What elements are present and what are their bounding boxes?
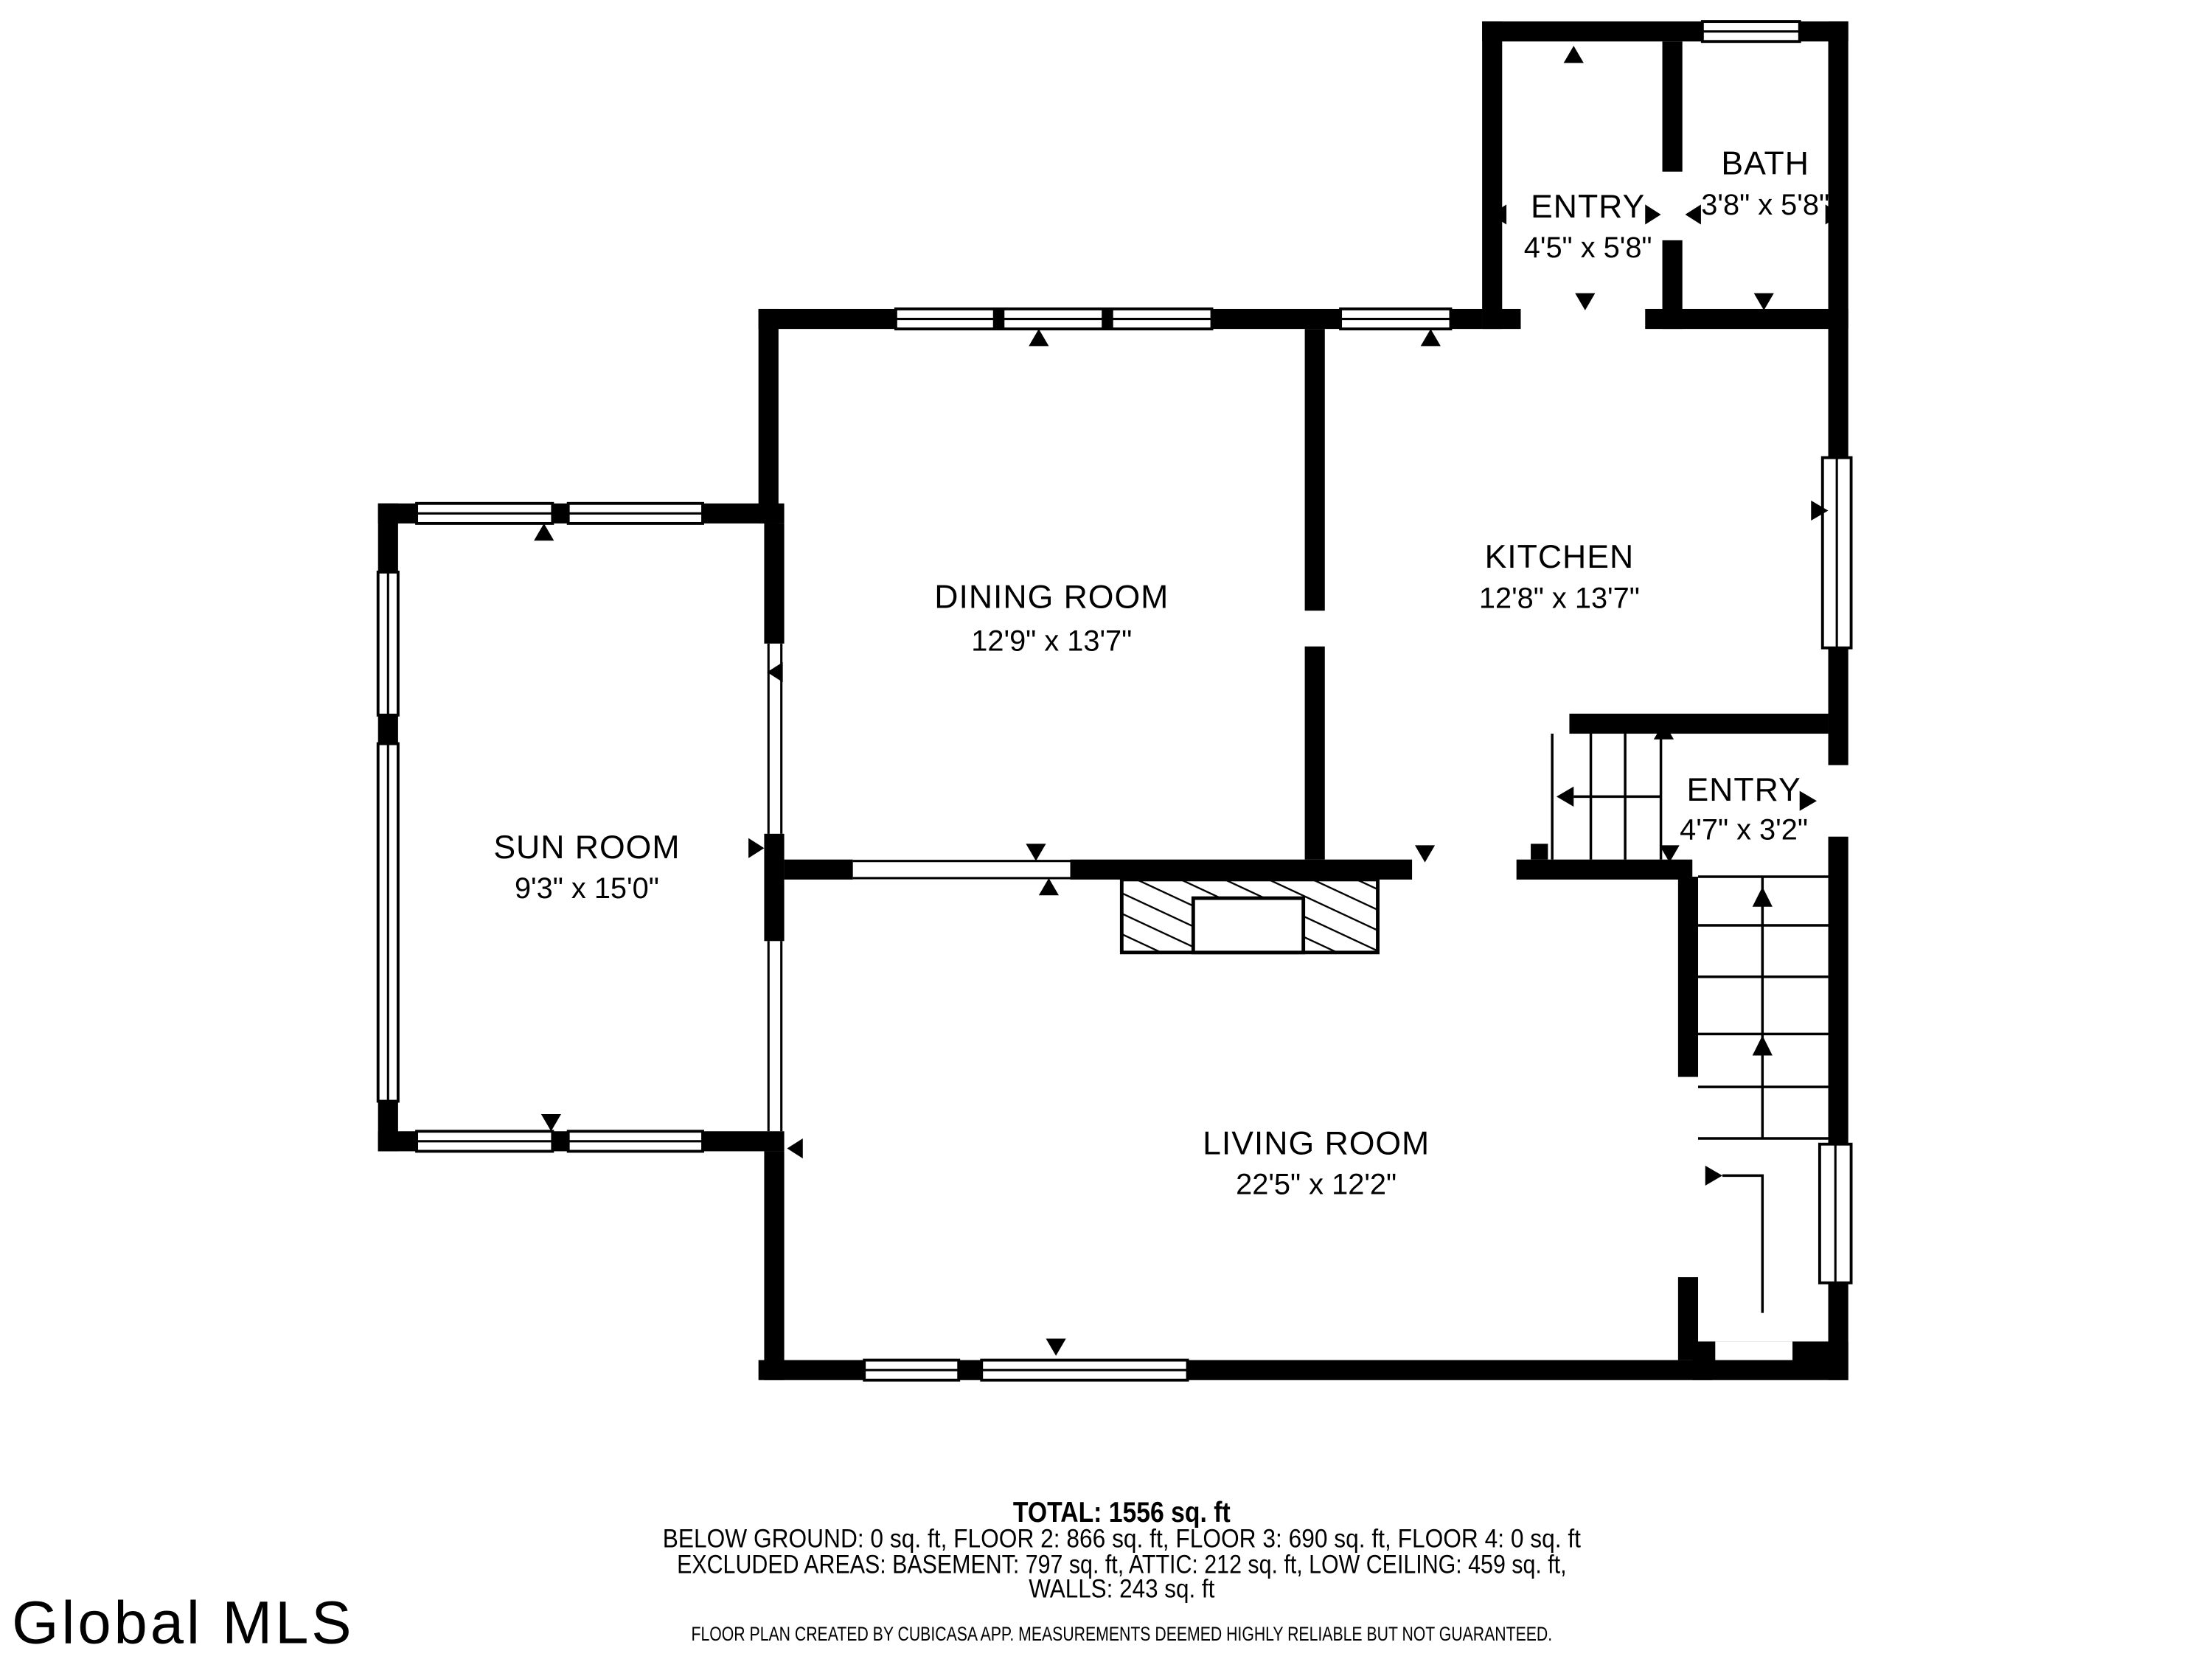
window xyxy=(1823,458,1851,648)
wall xyxy=(1829,837,1848,1144)
window xyxy=(378,744,398,1102)
wall xyxy=(1829,648,1848,765)
exterior-door xyxy=(1715,1341,1792,1360)
window xyxy=(981,1360,1187,1380)
global-mls-logo: Global MLS xyxy=(12,1590,354,1657)
window xyxy=(1703,21,1800,41)
walls-area-text: WALLS: 243 sq. ft xyxy=(1029,1575,1214,1604)
wall xyxy=(764,524,784,644)
wall xyxy=(1071,860,1413,880)
window xyxy=(1340,309,1450,329)
window xyxy=(864,1360,959,1380)
wall xyxy=(1645,309,1848,329)
wall xyxy=(764,834,784,941)
room-dims-bath: 3'8" x 5'8" xyxy=(1701,189,1829,221)
floors-area-text: BELOW GROUND: 0 sq. ft, FLOOR 2: 866 sq.… xyxy=(663,1525,1582,1554)
wall xyxy=(1482,309,1520,329)
window xyxy=(568,1131,703,1151)
wall xyxy=(1517,860,1693,880)
room-dims-entry-side: 4'7" x 3'2" xyxy=(1680,814,1808,846)
room-dims-dining: 12'9" x 13'7" xyxy=(971,625,1132,658)
room-dims-living: 22'5" x 12'2" xyxy=(1236,1169,1397,1201)
room-label-sunroom: SUN ROOM xyxy=(493,829,680,866)
disclaimer-text: FLOOR PLAN CREATED BY CUBICASA APP. MEAS… xyxy=(692,1622,1553,1645)
fireplace xyxy=(1121,880,1377,953)
room-dims-kitchen: 12'8" x 13'7" xyxy=(1479,582,1640,614)
window xyxy=(417,504,552,524)
total-area-text: TOTAL: 1556 sq. ft xyxy=(1013,1497,1231,1528)
page-background xyxy=(1,0,2212,1659)
room-dims-entry-top: 4'5" x 5'8" xyxy=(1524,232,1652,264)
wall xyxy=(1531,844,1548,859)
room-label-bath: BATH xyxy=(1721,146,1809,182)
wall xyxy=(785,860,853,880)
wall xyxy=(764,1151,784,1380)
wall xyxy=(1305,329,1325,611)
room-label-dining: DINING ROOM xyxy=(934,579,1169,615)
floor-plan: ENTRY 4'5" x 5'8" BATH 3'8" x 5'8" DININ… xyxy=(0,0,2212,1659)
wall xyxy=(1663,41,1683,172)
wall xyxy=(1569,714,1828,734)
window xyxy=(896,309,1212,329)
room-label-entry-side: ENTRY xyxy=(1686,772,1801,808)
window xyxy=(417,1131,552,1151)
room-dims-sunroom: 9'3" x 15'0" xyxy=(515,872,659,905)
wall xyxy=(1305,647,1325,860)
window xyxy=(378,572,398,715)
room-label-kitchen: KITCHEN xyxy=(1485,539,1635,575)
wall xyxy=(1678,877,1698,1077)
room-label-entry-top: ENTRY xyxy=(1531,189,1645,225)
wall xyxy=(1829,21,1848,458)
window xyxy=(1820,1144,1851,1283)
wall xyxy=(759,309,779,524)
wall xyxy=(1482,21,1502,329)
room-label-living: LIVING ROOM xyxy=(1203,1125,1430,1161)
window xyxy=(568,504,703,524)
